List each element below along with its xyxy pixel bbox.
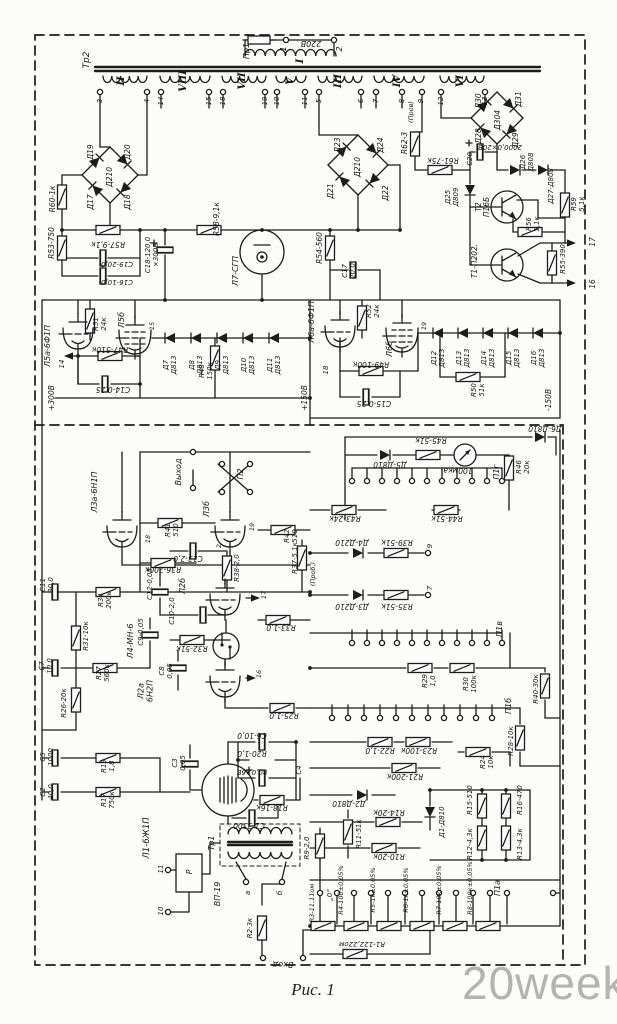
diode-icon [508,328,518,338]
resistor [406,738,430,747]
resistor [270,704,294,713]
component-label: (Проб.) [309,562,317,586]
component-label: R49-100к [352,361,389,370]
component-label: Т2П16Б [473,197,490,217]
component-label: R22-1,0 [365,747,395,756]
switch-contact [409,630,414,646]
component-label: R58-9,1к [212,202,221,236]
component-label: П1г [492,464,501,480]
diode-icon [458,328,468,338]
resistor [260,796,284,805]
component-label: Д11Д813 [266,356,282,376]
component-label: 6 [357,98,365,103]
switch-contact [453,890,458,924]
switch-contact [439,630,444,646]
component-label: R55-390 [559,244,567,274]
component-label: 18 [322,365,330,374]
resistor [376,818,400,827]
component-label: 220В [301,40,322,49]
switch-contact [349,630,354,646]
component-label: П1а [493,880,502,896]
switch-contact [345,705,350,721]
component-label: Л3а-6Н1П [90,471,99,513]
component-label: С19-20,0 [101,260,133,268]
resistor [478,794,487,818]
switch-contact [364,630,369,646]
component-label: R18-16к [256,804,288,813]
component-label: „0“ [326,889,334,901]
terminal-contact [219,461,224,466]
component-label: 100мка [443,467,473,476]
component-label: R35-51к [381,603,413,612]
terminal-contact [283,37,288,42]
component-label: R60-1к [48,185,57,212]
arrow-icon [64,352,73,359]
component-label: R2-3к [246,917,254,938]
component-label: Д12Д813 [430,349,446,369]
component-label: 10 [157,906,165,915]
switch-contact [329,705,334,721]
component-label: Д14Д813 [480,349,496,369]
terminal-contact [219,489,224,494]
component-label: 15 [148,322,156,330]
component-label: (Пров) [407,101,415,123]
transformer-tr2 [95,67,540,71]
component-label: R40-30к [532,674,540,704]
switch-contact [469,630,474,646]
component-label: Д210 [353,157,362,178]
component-label: Д4-Д210 [335,539,370,548]
terminal-contact [419,89,424,94]
switch-contact [349,468,354,484]
component-label: 19 [261,96,269,105]
component-label: Д26Д808 [519,152,535,172]
component-label: R53-750 [47,227,56,259]
switch-contact [393,705,398,721]
switch-contact [377,705,382,721]
resistor [541,674,550,698]
component-label: 11 [157,865,165,874]
component-label: 9 [417,98,425,103]
triode-tube [321,311,355,352]
component-label: Д5-Д810 [373,461,408,470]
junction-dot [328,228,332,232]
triode-tube [206,661,240,702]
component-label: 10 [273,96,281,105]
resistor [450,664,474,673]
component-label: Д31 [514,91,523,107]
diode-icon [483,328,493,338]
component-label: R21-200к [386,773,423,782]
component-label: 2 [335,46,344,51]
component-label: 2 [215,544,223,548]
resistor [411,132,420,156]
component-label: Д210 [105,167,114,188]
junction-dot [308,396,312,400]
switch-contact [424,630,429,646]
component-label: Л6б [385,341,394,358]
component-label: С14-0,25 [96,386,130,395]
component-label: R17750к [100,790,116,808]
resistor [505,456,514,480]
component-label: Д2-Д810 [332,800,367,809]
component-label: R28-10к [507,726,515,756]
junction-dot [504,788,508,792]
resistor [368,738,392,747]
component-label: Л1-6Ж1П [142,817,152,860]
component-label: 7 [426,585,434,590]
component-label: R565,1к [525,216,541,232]
terminal-contact [300,955,305,960]
terminal-contact [373,89,378,94]
component-label: 14 [157,97,165,106]
arrow-icon [567,239,576,246]
terminal-contact [144,89,149,94]
junction-dot [260,298,264,302]
component-label: Д24 [376,137,385,154]
terminal-contact [316,89,321,94]
component-label: Р [185,869,194,874]
component-label: R30100к [462,674,478,692]
terminal-contact [358,89,363,94]
component-label: С20 [466,152,474,166]
transistor [491,191,523,223]
resistor [58,185,67,209]
terminal-contact [302,89,307,94]
switch-contact [409,705,414,721]
resistor [180,636,204,645]
component-label: С13-2,0 [173,555,203,564]
junction-dot [163,298,167,302]
component-label: R7-10к±0,05% [435,865,443,914]
resistor [372,844,396,853]
component-label: R54-560 [315,232,324,264]
component-label: R39-51к [381,539,413,548]
terminal-contact [399,89,404,94]
component-label: С9-0,05 [137,618,145,646]
resistor [72,688,81,712]
component-label: R5051к [470,383,486,397]
component-label: R45-51к [415,437,447,446]
terminal-contact [247,489,252,494]
switch-contact [441,705,446,721]
fuse [243,36,275,44]
component-label: R14-20к [373,809,405,818]
component-label: Д19 [86,144,95,161]
junction-dot [428,788,432,792]
component-label: R38-2,0 [233,554,241,582]
component-label: R4-100±0,05% [337,865,345,915]
component-label: Л3б [202,501,211,518]
resistor [561,193,570,217]
resistor [384,549,408,558]
component-label: С1720,0 [341,263,357,279]
switch-contact [385,890,390,924]
component-label: С710,0 [38,658,54,674]
diode-icon [353,548,363,558]
component-label: R5-1к±0,05% [369,867,377,912]
component-label: R1-122,22ом [338,940,385,948]
junction-dot [504,858,508,862]
junction-dot [308,551,312,555]
component-label: 16 [255,670,263,678]
diode-icon [217,333,227,343]
component-label: R20-1,0 [237,750,267,759]
component-label: С12-0,05 [146,568,154,600]
component-label: Л5б [117,312,126,329]
component-label: V [285,76,296,85]
component-label: +300В [47,385,56,411]
component-label: Д28 [474,128,483,145]
resistor [316,834,325,858]
terminal-contact [550,890,555,895]
component-label: R62-3 [400,132,409,154]
component-label: 80,0×6В [236,768,267,776]
resistor [344,922,368,931]
terminal-contact [482,89,487,94]
resistor [502,826,511,850]
component-label: R191,8 [100,759,116,773]
switch-contact [473,705,478,721]
switch-contact [425,705,430,721]
component-label: 5 [315,98,323,103]
component-label: III [333,74,344,89]
component-label: Выход [174,458,183,485]
component-label: R61-75к [427,157,459,166]
resistor [428,166,452,175]
junction-dot [60,228,64,232]
component-label: I [295,58,306,64]
component-label: Д25Д809 [444,187,460,207]
junction-dot [398,228,402,232]
junction-dot [308,590,312,594]
component-label: R16-470 [516,785,524,815]
resistor [58,236,67,260]
resistor [516,726,525,750]
triode-tube [103,511,137,552]
winding [245,49,336,56]
resistor [96,226,120,235]
resistor [266,616,290,625]
terminal-contact [165,909,170,914]
component-label: Д23 [333,137,342,154]
terminal-contact [425,592,430,597]
terminal-contact [260,955,265,960]
component-label: б [276,890,284,895]
terminal-contact [97,89,102,94]
junction-dot [480,788,484,792]
switch-contact [484,468,489,484]
component-label: Д1-Д810 [438,806,446,839]
component-label: Т1-П202. [470,244,479,278]
component-label: VII [237,72,248,89]
component-label: С1130,0 [39,577,55,593]
component-label: Л2а6Н2П [136,680,154,702]
component-label: R57-9,1к [91,241,125,250]
figure-caption: Рис. 1 [258,980,368,1000]
wire [518,243,540,256]
switch-contact [351,890,356,924]
component-label: 4 [143,99,151,103]
resistor [410,922,434,931]
switch-contact [364,468,369,484]
switch-contact [504,890,509,924]
component-label: Д17 [86,194,95,211]
component-label: Д29 [511,132,520,149]
component-label: R25-1,0 [269,712,299,721]
component-label: R42510 [283,529,299,543]
component-label: 18 [144,535,152,543]
component-label: +150В [300,385,309,411]
component-label: R10-20к [373,853,405,862]
component-label: Д10Д813 [240,356,256,376]
watermark: 20week [462,956,617,1010]
terminal-contact [243,879,248,884]
component-label: С1 3300 [233,822,265,831]
junction-dot [480,858,484,862]
component-label: Д3-Д210 [335,603,370,612]
switch-contact [419,890,424,924]
terminal-contact [190,485,195,490]
terminal-contact [425,550,430,555]
resistor [416,451,440,460]
component-label: VIII [178,70,189,92]
component-label: Д16Д813 [530,349,546,369]
component-label: R33-1,0 [266,624,296,633]
component-label: 9 [426,543,434,548]
junction-dot [558,331,562,335]
resistor [384,591,408,600]
component-label: 11 [301,97,309,106]
wiring [42,40,568,958]
component-label: 19 [420,322,428,330]
component-label: 19 [248,523,256,531]
resistor [548,251,557,275]
wire [518,274,540,283]
component-label: VI [455,74,466,87]
terminal-contact [158,89,163,94]
component-label: С18-120,0×300В [144,236,160,273]
component-label: Л2б [178,578,187,595]
resistor [344,820,353,844]
component-label: R291,0 [421,674,437,688]
terminal-contact [206,89,211,94]
diode-icon [269,333,279,343]
component-label: Д21 [326,183,335,199]
component-label: II [116,76,127,87]
component-label: Д7Д813 [162,356,178,376]
diode-icon [533,328,543,338]
junction-dot [163,228,167,232]
resistor [332,506,356,515]
component-label: 3 [96,99,104,103]
capacitor [152,589,168,595]
resistor [343,950,367,959]
terminal-contact [331,37,336,42]
component-label: R5124к [92,317,108,331]
resistor [72,626,81,650]
resistor [377,922,401,931]
component-label: R31-10к [82,621,90,651]
component-label: R9-2,0 [303,836,311,860]
component-label: 17 [260,590,268,599]
component-label: С10-2,0 [168,597,176,625]
component-label: 1 [279,46,288,51]
component-label: 14 [58,360,66,369]
component-label: R47-510к [91,346,128,355]
wire [282,862,286,879]
polarity-plus [466,140,472,146]
junction-dot [356,228,360,232]
component-label: 8 [398,98,406,103]
component-label: 15 [205,96,213,105]
component-label: Пр1 [242,43,251,59]
switch-contact [454,630,459,646]
transistor [491,249,523,281]
circuit-schematic: Тр2Пр11220В2IIIVIIIVIIVIIIIVVI3414151819… [0,0,617,1024]
component-label: 17 [588,237,597,247]
component-label: Д18 [123,194,132,211]
switch-contact [489,705,494,721]
terminal-contact [247,461,252,466]
resistor [434,506,458,515]
component-label: Тр2 [82,51,92,68]
diode-icon [380,450,390,460]
component-label: Д20 [123,144,132,161]
component-label: R13-4,3к [516,827,524,859]
component-label: Д22 [381,185,390,202]
component-label: R3-11,11ом [308,884,316,923]
component-label: R26-20к [60,688,68,718]
neon-lamp [213,633,239,659]
microammeter [454,444,476,466]
component-label: R23-100к [400,747,437,756]
terminal-contact [279,879,284,884]
component-label: П2 [236,468,245,479]
component-label: Вход [272,961,293,970]
diode-icon [465,185,475,195]
component-label: П1в [495,621,504,637]
diode-icon [165,333,175,343]
component-label: а [244,891,252,895]
component-label: С80,05 [158,663,174,679]
component-label: Л6а-6Ф1П [307,301,316,344]
component-label: R37-5,1к [291,541,299,573]
diode-icon [433,328,443,338]
resistor [478,826,487,850]
wire [236,862,246,879]
component-label: R2410к [479,755,495,769]
diode-icon [191,333,201,343]
component-label: С16-10,0 [101,278,133,286]
resistor [408,664,432,673]
component-label: Д6-Д810 [528,425,563,434]
capacitor [200,607,206,623]
winding [228,852,292,859]
component-label: R43-24к [329,515,361,524]
terminal-contact [190,449,195,454]
component-label: С15-0,25 [357,400,391,409]
component-label: 12 [437,96,445,105]
switch-contact [317,890,322,924]
resistor [258,916,267,940]
arrow-icon [251,594,260,601]
component-label: R27560к [95,663,111,681]
component-label: Д304 [493,110,502,131]
component-label: П1б [504,698,513,714]
terminal-contact [274,89,279,94]
terminal-contact [220,89,225,94]
